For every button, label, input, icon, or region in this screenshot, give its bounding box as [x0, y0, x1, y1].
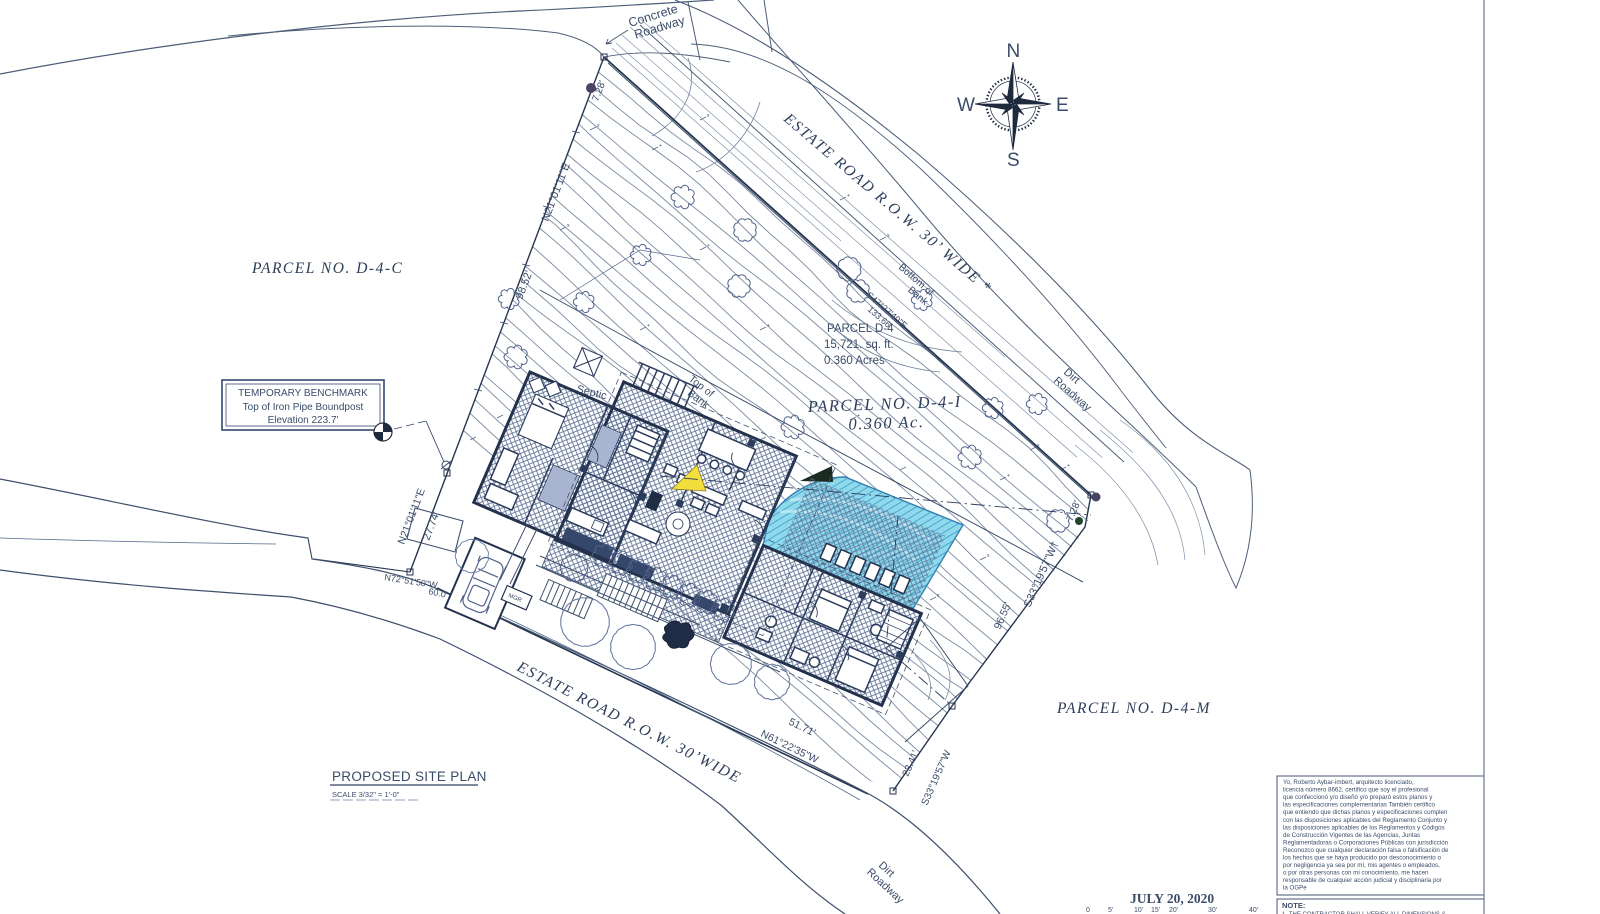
- svg-text:SCALE 3/32" = 1'-0": SCALE 3/32" = 1'-0": [332, 790, 400, 799]
- svg-text:N: N: [1007, 41, 1021, 62]
- svg-text:+: +: [659, 143, 662, 149]
- svg-text:las disposiciones aplicables: las disposiciones aplicables de los Regl…: [1283, 824, 1445, 831]
- svg-text:Yo, Roberto Aybar-imbert, arq: Yo, Roberto Aybar-imbert, arquitecto lic…: [1283, 779, 1414, 786]
- svg-text:20': 20': [1169, 907, 1178, 914]
- svg-text:15': 15': [1151, 907, 1160, 914]
- svg-text:que entiendo que dichas pla: que entiendo que dichas planos y especif…: [1283, 809, 1448, 816]
- svg-text:0.360 Acres: 0.360 Acres: [824, 355, 885, 367]
- svg-text:+: +: [1007, 473, 1010, 479]
- svg-text:Elevation 223.7': Elevation 223.7': [268, 415, 339, 426]
- svg-text:PARCEL NO. D-4-M: PARCEL NO. D-4-M: [1056, 700, 1211, 717]
- svg-text:Top of Iron Pipe Boundpost: Top of Iron Pipe Boundpost: [243, 402, 364, 413]
- svg-text:PARCEL NO. D-4-C: PARCEL NO. D-4-C: [251, 260, 403, 277]
- svg-text:+: +: [847, 193, 850, 199]
- svg-text:E: E: [1056, 95, 1069, 116]
- svg-text:con las disposiciones aplic: con las disposiciones aplicables del Reg…: [1283, 817, 1448, 824]
- svg-text:PROPOSED SITE PLAN: PROPOSED SITE PLAN: [332, 769, 487, 784]
- svg-text:de Construcción Vigentes de: de Construcción Vigentes de las Agencias…: [1283, 832, 1420, 839]
- svg-text:responsable de cualquier ac: responsable de cualquier acción judicial…: [1283, 877, 1442, 884]
- svg-text:S: S: [1007, 150, 1020, 171]
- svg-text:Reglamentadoras o Corporacion: Reglamentadoras o Corporaciones Públicas…: [1283, 839, 1449, 846]
- svg-text:los hechos que se haya pr: los hechos que se haya producido por des…: [1283, 855, 1441, 862]
- svg-text:+: +: [707, 243, 710, 249]
- svg-text:5': 5': [1108, 907, 1113, 914]
- svg-text:las especificaciones complemen: las especificaciones complementarias Tam…: [1283, 802, 1435, 809]
- svg-text:+: +: [767, 323, 770, 329]
- svg-text:W: W: [957, 95, 975, 116]
- svg-text:+: +: [1067, 463, 1070, 469]
- svg-text:10': 10': [1134, 907, 1143, 914]
- svg-text:15,721. sq. ft.: 15,721. sq. ft.: [824, 339, 894, 351]
- svg-text:por negligencia ya sea p: por negligencia ya sea por mí, mis agent…: [1283, 862, 1440, 869]
- svg-text:30': 30': [1208, 907, 1217, 914]
- svg-text:TEMPORARY BENCHMARK: TEMPORARY BENCHMARK: [238, 388, 368, 399]
- svg-text:que confeccionó y/o diseñó y/: que confeccionó y/o diseñó y/o preparó e…: [1283, 794, 1433, 801]
- svg-text:0.360 Ac.: 0.360 Ac.: [848, 412, 925, 434]
- svg-text:licencia número 8662, certific: licencia número 8662, certifico que soy …: [1283, 787, 1429, 794]
- svg-text:NOTE:: NOTE:: [1282, 901, 1305, 910]
- svg-text:Reconozco que cualquier dec: Reconozco que cualquier declaración fals…: [1283, 847, 1449, 854]
- svg-text:+: +: [647, 323, 650, 329]
- svg-text:0: 0: [1086, 907, 1090, 914]
- svg-text:o por otras personas con: o por otras personas con mi conocimiento…: [1283, 870, 1429, 877]
- svg-text:40': 40': [1249, 907, 1258, 914]
- svg-text:la OGPe: la OGPe: [1283, 885, 1307, 892]
- svg-text:JULY 20, 2020: JULY 20, 2020: [1130, 891, 1214, 906]
